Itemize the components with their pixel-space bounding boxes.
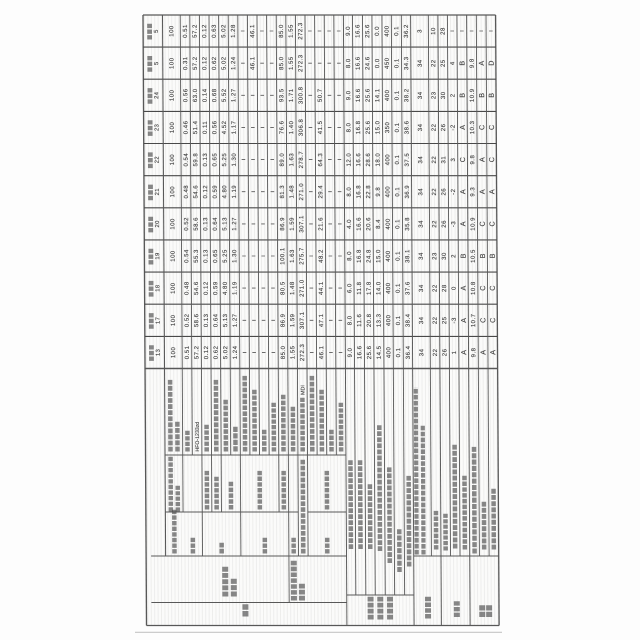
svg-text:0.62: 0.62 bbox=[212, 56, 218, 70]
svg-text:5: 5 bbox=[154, 29, 160, 33]
svg-text:16.6: 16.6 bbox=[356, 88, 362, 102]
svg-text:0.52: 0.52 bbox=[185, 313, 191, 327]
svg-text:26: 26 bbox=[441, 123, 447, 131]
svg-text:38.1: 38.1 bbox=[405, 249, 411, 263]
svg-text:0.1: 0.1 bbox=[395, 90, 401, 100]
svg-text:0.56: 0.56 bbox=[183, 88, 189, 102]
svg-text:B: B bbox=[478, 253, 487, 258]
svg-text:35.8: 35.8 bbox=[405, 217, 411, 231]
svg-text:400: 400 bbox=[386, 218, 392, 230]
svg-text:100: 100 bbox=[170, 154, 176, 166]
svg-text:0.54: 0.54 bbox=[184, 153, 190, 167]
svg-text:0.59: 0.59 bbox=[213, 185, 219, 199]
svg-text:2: 2 bbox=[451, 254, 457, 258]
svg-text:36.4: 36.4 bbox=[406, 345, 412, 359]
svg-text:85.0: 85.0 bbox=[279, 24, 285, 38]
svg-text:14.0: 14.0 bbox=[376, 281, 382, 295]
svg-text:1.27: 1.27 bbox=[232, 217, 238, 231]
svg-text:400: 400 bbox=[386, 282, 392, 294]
svg-text:1.55: 1.55 bbox=[289, 24, 295, 38]
svg-text:58.6: 58.6 bbox=[194, 217, 200, 231]
svg-text:20: 20 bbox=[155, 220, 161, 227]
svg-text:400: 400 bbox=[386, 314, 392, 326]
svg-text:0.48: 0.48 bbox=[184, 281, 190, 295]
svg-text:0.0: 0.0 bbox=[375, 26, 381, 36]
svg-text:4.80: 4.80 bbox=[222, 185, 228, 199]
svg-text:57.2: 57.2 bbox=[193, 24, 199, 38]
svg-text:100: 100 bbox=[170, 89, 176, 101]
svg-text:46.1: 46.1 bbox=[250, 56, 256, 70]
svg-text:22: 22 bbox=[432, 156, 438, 164]
svg-text:400: 400 bbox=[385, 89, 391, 101]
svg-text:22: 22 bbox=[433, 348, 439, 356]
svg-text:34: 34 bbox=[418, 188, 424, 196]
svg-text:5.13: 5.13 bbox=[222, 217, 228, 231]
svg-text:100: 100 bbox=[171, 282, 177, 294]
svg-text:15.0: 15.0 bbox=[375, 120, 381, 134]
svg-text:38.2: 38.2 bbox=[404, 88, 410, 102]
svg-text:5.52: 5.52 bbox=[222, 88, 228, 102]
svg-text:1.59: 1.59 bbox=[290, 217, 296, 231]
svg-text:21: 21 bbox=[155, 188, 161, 195]
svg-text:4.52: 4.52 bbox=[222, 120, 228, 134]
svg-text:10.8: 10.8 bbox=[471, 281, 477, 295]
svg-text:400: 400 bbox=[385, 154, 391, 166]
svg-text:8.0: 8.0 bbox=[346, 122, 352, 132]
svg-text:C: C bbox=[488, 318, 497, 323]
svg-text:C: C bbox=[487, 157, 496, 162]
svg-text:0.46: 0.46 bbox=[184, 120, 190, 134]
svg-text:350: 350 bbox=[385, 121, 391, 133]
svg-text:306.8: 306.8 bbox=[299, 118, 305, 136]
svg-text:MDI: MDI bbox=[300, 385, 306, 395]
svg-text:21.6: 21.6 bbox=[318, 217, 324, 231]
svg-text:3: 3 bbox=[451, 158, 457, 162]
svg-text:37.5: 37.5 bbox=[405, 153, 411, 167]
svg-text:5.13: 5.13 bbox=[223, 313, 229, 327]
svg-text:450: 450 bbox=[385, 57, 391, 69]
svg-text:0.1: 0.1 bbox=[396, 315, 402, 325]
svg-text:34: 34 bbox=[419, 316, 425, 324]
svg-text:57.2: 57.2 bbox=[194, 345, 200, 359]
svg-text:24: 24 bbox=[154, 91, 160, 99]
svg-text:8.0: 8.0 bbox=[346, 58, 352, 68]
svg-text:0.12: 0.12 bbox=[204, 281, 210, 295]
svg-text:10.7: 10.7 bbox=[471, 313, 477, 327]
svg-text:A: A bbox=[459, 285, 468, 290]
svg-text:12.0: 12.0 bbox=[347, 153, 353, 167]
svg-text:4: 4 bbox=[450, 61, 456, 65]
svg-text:0: 0 bbox=[452, 286, 458, 290]
svg-text:272.3: 272.3 bbox=[300, 343, 306, 361]
svg-text:81.3: 81.3 bbox=[280, 185, 286, 199]
svg-text:1.55: 1.55 bbox=[289, 56, 295, 70]
svg-text:18: 18 bbox=[155, 284, 161, 291]
svg-text:16.6: 16.6 bbox=[355, 24, 361, 38]
svg-text:28: 28 bbox=[441, 27, 447, 35]
svg-text:0.1: 0.1 bbox=[396, 283, 402, 293]
svg-text:C: C bbox=[478, 318, 487, 323]
svg-text:6.0: 6.0 bbox=[347, 283, 353, 293]
svg-text:37.6: 37.6 bbox=[405, 281, 411, 295]
svg-text:24.8: 24.8 bbox=[366, 249, 372, 263]
svg-text:A: A bbox=[477, 61, 486, 66]
svg-text:0.12: 0.12 bbox=[204, 345, 210, 359]
svg-text:B: B bbox=[488, 253, 497, 258]
svg-text:28.6: 28.6 bbox=[366, 153, 372, 167]
svg-text:0.65: 0.65 bbox=[212, 153, 218, 167]
svg-text:B: B bbox=[477, 93, 486, 98]
svg-text:80.5: 80.5 bbox=[280, 281, 286, 295]
svg-text:C: C bbox=[458, 157, 467, 162]
svg-text:63.0: 63.0 bbox=[193, 88, 199, 102]
svg-text:34: 34 bbox=[419, 284, 425, 292]
svg-text:44.1: 44.1 bbox=[319, 281, 325, 295]
svg-text:10.5: 10.5 bbox=[471, 249, 477, 263]
svg-text:8.4: 8.4 bbox=[376, 219, 382, 229]
svg-text:C: C bbox=[487, 221, 496, 226]
svg-text:9.0: 9.0 bbox=[346, 90, 352, 100]
svg-text:25.6: 25.6 bbox=[365, 24, 371, 38]
svg-text:1.17: 1.17 bbox=[232, 120, 238, 134]
svg-text:0.48: 0.48 bbox=[184, 185, 190, 199]
svg-text:5.02: 5.02 bbox=[221, 24, 227, 38]
svg-text:300.8: 300.8 bbox=[299, 86, 305, 104]
svg-text:47.1: 47.1 bbox=[319, 313, 325, 327]
svg-text:22: 22 bbox=[432, 123, 438, 131]
svg-text:24.6: 24.6 bbox=[365, 56, 371, 70]
svg-text:22: 22 bbox=[432, 188, 438, 196]
svg-text:0.13: 0.13 bbox=[203, 249, 209, 263]
svg-text:0.1: 0.1 bbox=[395, 155, 401, 165]
svg-text:34: 34 bbox=[419, 252, 425, 260]
svg-text:A: A bbox=[459, 350, 468, 355]
svg-text:C: C bbox=[478, 285, 487, 290]
svg-text:86.9: 86.9 bbox=[280, 217, 286, 231]
svg-text:34: 34 bbox=[419, 348, 425, 356]
svg-text:64.3: 64.3 bbox=[318, 153, 324, 167]
svg-text:89.0: 89.0 bbox=[280, 153, 286, 167]
svg-text:1.19: 1.19 bbox=[232, 281, 238, 295]
svg-text:-2: -2 bbox=[451, 124, 457, 130]
svg-text:400: 400 bbox=[386, 346, 392, 358]
svg-text:-3: -3 bbox=[452, 317, 458, 323]
svg-text:28: 28 bbox=[442, 284, 448, 292]
svg-text:23: 23 bbox=[431, 91, 437, 99]
svg-text:0.63: 0.63 bbox=[212, 24, 218, 38]
svg-text:0.13: 0.13 bbox=[203, 217, 209, 231]
svg-text:1.63: 1.63 bbox=[290, 249, 296, 263]
svg-text:93.5: 93.5 bbox=[279, 88, 285, 102]
svg-text:38.6: 38.6 bbox=[405, 120, 411, 134]
svg-text:8.0: 8.0 bbox=[348, 315, 354, 325]
svg-text:9.0: 9.0 bbox=[346, 26, 352, 36]
svg-text:A: A bbox=[459, 318, 468, 323]
svg-text:26: 26 bbox=[442, 220, 448, 228]
svg-text:0.64: 0.64 bbox=[213, 217, 219, 231]
svg-text:22: 22 bbox=[433, 284, 439, 292]
svg-text:400: 400 bbox=[385, 186, 391, 198]
svg-text:B: B bbox=[459, 253, 468, 258]
svg-text:5.02: 5.02 bbox=[223, 345, 229, 359]
svg-text:B: B bbox=[458, 93, 467, 98]
svg-text:0.13: 0.13 bbox=[204, 313, 210, 327]
svg-text:9.8: 9.8 bbox=[471, 347, 477, 357]
svg-text:16.6: 16.6 bbox=[357, 217, 363, 231]
svg-text:100: 100 bbox=[169, 57, 175, 69]
svg-text:25: 25 bbox=[441, 59, 447, 67]
svg-text:0.65: 0.65 bbox=[213, 249, 219, 263]
svg-text:1.28: 1.28 bbox=[231, 24, 237, 38]
svg-text:26: 26 bbox=[442, 348, 448, 356]
svg-text:0.0: 0.0 bbox=[375, 58, 381, 68]
svg-text:10.3: 10.3 bbox=[470, 120, 476, 134]
svg-text:A: A bbox=[458, 221, 467, 226]
svg-text:23: 23 bbox=[432, 252, 438, 260]
svg-text:0.12: 0.12 bbox=[202, 56, 208, 70]
svg-text:B: B bbox=[457, 61, 466, 66]
svg-text:400: 400 bbox=[385, 25, 391, 37]
svg-text:100: 100 bbox=[170, 186, 176, 198]
svg-text:29.4: 29.4 bbox=[318, 185, 324, 199]
svg-text:1: 1 bbox=[452, 350, 458, 354]
svg-text:36.2: 36.2 bbox=[404, 24, 410, 38]
svg-text:54.6: 54.6 bbox=[194, 281, 200, 295]
svg-text:1.63: 1.63 bbox=[289, 153, 295, 167]
svg-text:46.1: 46.1 bbox=[319, 345, 325, 359]
svg-text:0.13: 0.13 bbox=[203, 153, 209, 167]
svg-text:0.59: 0.59 bbox=[213, 281, 219, 295]
svg-text:5.25: 5.25 bbox=[222, 153, 228, 167]
svg-text:1.59: 1.59 bbox=[290, 313, 296, 327]
svg-text:0.64: 0.64 bbox=[213, 313, 219, 327]
svg-text:25.6: 25.6 bbox=[366, 88, 372, 102]
svg-text:10.9: 10.9 bbox=[471, 217, 477, 231]
svg-text:271.0: 271.0 bbox=[299, 183, 305, 201]
svg-text:C: C bbox=[488, 285, 497, 290]
svg-text:A: A bbox=[458, 125, 467, 130]
svg-text:25: 25 bbox=[442, 316, 448, 324]
svg-text:85.0: 85.0 bbox=[279, 56, 285, 70]
svg-text:A: A bbox=[488, 350, 497, 355]
svg-text:0.31: 0.31 bbox=[183, 56, 189, 70]
svg-text:0.54: 0.54 bbox=[184, 249, 190, 263]
svg-text:0.56: 0.56 bbox=[212, 120, 218, 134]
svg-text:100: 100 bbox=[170, 218, 176, 230]
svg-text:1.30: 1.30 bbox=[232, 153, 238, 167]
svg-text:34: 34 bbox=[418, 59, 424, 67]
svg-text:275.7: 275.7 bbox=[299, 247, 305, 265]
svg-text:8.0: 8.0 bbox=[347, 251, 353, 261]
svg-text:3: 3 bbox=[417, 29, 423, 33]
svg-text:C: C bbox=[487, 125, 496, 130]
svg-text:A: A bbox=[458, 189, 467, 194]
svg-text:1.48: 1.48 bbox=[289, 185, 295, 199]
svg-text:41.5: 41.5 bbox=[318, 120, 324, 134]
svg-text:1.40: 1.40 bbox=[289, 120, 295, 134]
svg-text:0.1: 0.1 bbox=[396, 251, 402, 261]
svg-text:16.6: 16.6 bbox=[357, 345, 363, 359]
svg-text:59.8: 59.8 bbox=[193, 153, 199, 167]
svg-text:0.68: 0.68 bbox=[212, 88, 218, 102]
svg-text:100: 100 bbox=[170, 121, 176, 133]
svg-text:22: 22 bbox=[433, 316, 439, 324]
svg-text:46.1: 46.1 bbox=[250, 24, 256, 38]
svg-text:0.12: 0.12 bbox=[202, 24, 208, 38]
svg-text:1.30: 1.30 bbox=[232, 249, 238, 263]
svg-text:13: 13 bbox=[156, 349, 162, 356]
svg-text:2: 2 bbox=[450, 93, 456, 97]
svg-text:48.2: 48.2 bbox=[319, 249, 325, 263]
svg-text:100: 100 bbox=[171, 314, 177, 326]
svg-text:11.6: 11.6 bbox=[357, 314, 363, 327]
svg-text:13.3: 13.3 bbox=[377, 313, 383, 327]
svg-text:55.3: 55.3 bbox=[194, 249, 200, 263]
svg-text:14.1: 14.1 bbox=[375, 88, 381, 102]
svg-text:1.19: 1.19 bbox=[232, 185, 238, 199]
svg-text:307.1: 307.1 bbox=[300, 311, 306, 329]
svg-text:1.48: 1.48 bbox=[290, 281, 296, 295]
svg-text:16.6: 16.6 bbox=[356, 153, 362, 167]
svg-text:16.8: 16.8 bbox=[357, 249, 363, 263]
svg-text:1.24: 1.24 bbox=[233, 345, 239, 359]
svg-text:0.1: 0.1 bbox=[395, 122, 401, 132]
svg-text:11.8: 11.8 bbox=[357, 281, 363, 294]
svg-text:16.8: 16.8 bbox=[356, 185, 362, 199]
svg-text:20.6: 20.6 bbox=[366, 217, 372, 231]
svg-text:1.27: 1.27 bbox=[233, 313, 239, 327]
svg-text:100.1: 100.1 bbox=[280, 247, 286, 265]
svg-text:9.8: 9.8 bbox=[376, 187, 382, 197]
svg-text:0.14: 0.14 bbox=[203, 88, 209, 102]
svg-text:76.6: 76.6 bbox=[280, 120, 286, 134]
svg-text:1.24: 1.24 bbox=[231, 56, 237, 70]
svg-text:-2: -2 bbox=[451, 188, 457, 194]
svg-text:4.80: 4.80 bbox=[223, 281, 229, 295]
svg-text:307.1: 307.1 bbox=[299, 215, 305, 233]
svg-text:9.8: 9.8 bbox=[470, 58, 476, 68]
svg-text:9.0: 9.0 bbox=[348, 347, 354, 357]
svg-text:22.8: 22.8 bbox=[366, 185, 372, 199]
svg-text:5.25: 5.25 bbox=[223, 249, 229, 263]
svg-text:34: 34 bbox=[419, 220, 425, 228]
svg-text:51.4: 51.4 bbox=[193, 120, 199, 134]
svg-text:17.8: 17.8 bbox=[367, 281, 373, 295]
svg-text:0.11: 0.11 bbox=[203, 121, 209, 134]
svg-text:38.4: 38.4 bbox=[406, 313, 412, 327]
svg-text:4.0: 4.0 bbox=[347, 219, 353, 229]
svg-text:A: A bbox=[487, 189, 496, 194]
svg-text:1.55: 1.55 bbox=[290, 345, 296, 359]
svg-text:10: 10 bbox=[431, 27, 437, 35]
svg-text:85.0: 85.0 bbox=[281, 345, 287, 359]
svg-text:34: 34 bbox=[418, 123, 424, 131]
svg-text:30: 30 bbox=[441, 91, 447, 99]
svg-text:C: C bbox=[478, 221, 487, 226]
svg-text:0.51: 0.51 bbox=[185, 345, 191, 359]
svg-text:15.0: 15.0 bbox=[376, 249, 382, 263]
svg-text:272.3: 272.3 bbox=[298, 22, 304, 40]
svg-text:22: 22 bbox=[432, 220, 438, 228]
svg-text:22: 22 bbox=[155, 156, 161, 163]
svg-text:0.1: 0.1 bbox=[396, 347, 402, 357]
svg-text:-3: -3 bbox=[451, 221, 457, 227]
svg-text:17: 17 bbox=[156, 317, 162, 324]
svg-text:9.8: 9.8 bbox=[470, 155, 476, 165]
svg-text:A: A bbox=[479, 350, 488, 355]
svg-text:271.0: 271.0 bbox=[300, 279, 306, 297]
svg-text:10.9: 10.9 bbox=[470, 88, 476, 102]
svg-text:0.1: 0.1 bbox=[394, 26, 400, 36]
svg-text:D: D bbox=[487, 61, 496, 66]
svg-text:100: 100 bbox=[171, 346, 177, 358]
svg-text:0.1: 0.1 bbox=[395, 219, 401, 229]
svg-text:5.02: 5.02 bbox=[222, 56, 228, 70]
svg-text:34.3: 34.3 bbox=[404, 56, 410, 70]
svg-text:54.6: 54.6 bbox=[193, 185, 199, 199]
svg-text:B: B bbox=[487, 93, 496, 98]
svg-text:25.6: 25.6 bbox=[367, 345, 373, 359]
svg-text:C: C bbox=[477, 125, 486, 130]
svg-text:22: 22 bbox=[431, 59, 437, 67]
svg-text:14.5: 14.5 bbox=[377, 345, 383, 359]
svg-text:HFO-1233zd: HFO-1233zd bbox=[195, 422, 201, 452]
svg-text:0.12: 0.12 bbox=[203, 185, 209, 199]
svg-text:25.6: 25.6 bbox=[366, 120, 372, 134]
svg-text:18.0: 18.0 bbox=[376, 153, 382, 167]
svg-text:31: 31 bbox=[441, 156, 447, 164]
svg-text:400: 400 bbox=[386, 250, 392, 262]
svg-text:A: A bbox=[478, 189, 487, 194]
svg-text:57.2: 57.2 bbox=[193, 56, 199, 70]
svg-text:5: 5 bbox=[154, 61, 160, 65]
svg-text:278.7: 278.7 bbox=[299, 151, 305, 169]
svg-text:16.6: 16.6 bbox=[356, 56, 362, 70]
svg-text:58.6: 58.6 bbox=[194, 313, 200, 327]
svg-text:1.27: 1.27 bbox=[231, 88, 237, 102]
svg-text:1.71: 1.71 bbox=[289, 88, 295, 102]
svg-text:8.0: 8.0 bbox=[347, 187, 353, 197]
svg-text:A: A bbox=[477, 157, 486, 162]
svg-text:272.3: 272.3 bbox=[298, 54, 304, 72]
svg-text:86.9: 86.9 bbox=[281, 313, 287, 327]
svg-text:30: 30 bbox=[442, 252, 448, 260]
svg-text:0.1: 0.1 bbox=[395, 187, 401, 197]
svg-text:36.9: 36.9 bbox=[405, 185, 411, 199]
svg-text:100: 100 bbox=[171, 250, 177, 262]
svg-text:0.51: 0.51 bbox=[183, 24, 189, 38]
svg-text:34: 34 bbox=[418, 91, 424, 99]
svg-text:23: 23 bbox=[154, 124, 160, 131]
svg-text:0.52: 0.52 bbox=[184, 217, 190, 231]
svg-text:19: 19 bbox=[155, 252, 161, 259]
svg-text:100: 100 bbox=[169, 25, 175, 37]
svg-text:16.8: 16.8 bbox=[356, 120, 362, 134]
svg-text:9.3: 9.3 bbox=[470, 187, 476, 197]
svg-text:26: 26 bbox=[441, 188, 447, 196]
svg-text:50.7: 50.7 bbox=[318, 88, 324, 102]
svg-text:20.8: 20.8 bbox=[367, 313, 373, 327]
svg-text:34: 34 bbox=[418, 156, 424, 164]
svg-text:0.1: 0.1 bbox=[394, 58, 400, 68]
svg-text:0.62: 0.62 bbox=[214, 345, 220, 359]
